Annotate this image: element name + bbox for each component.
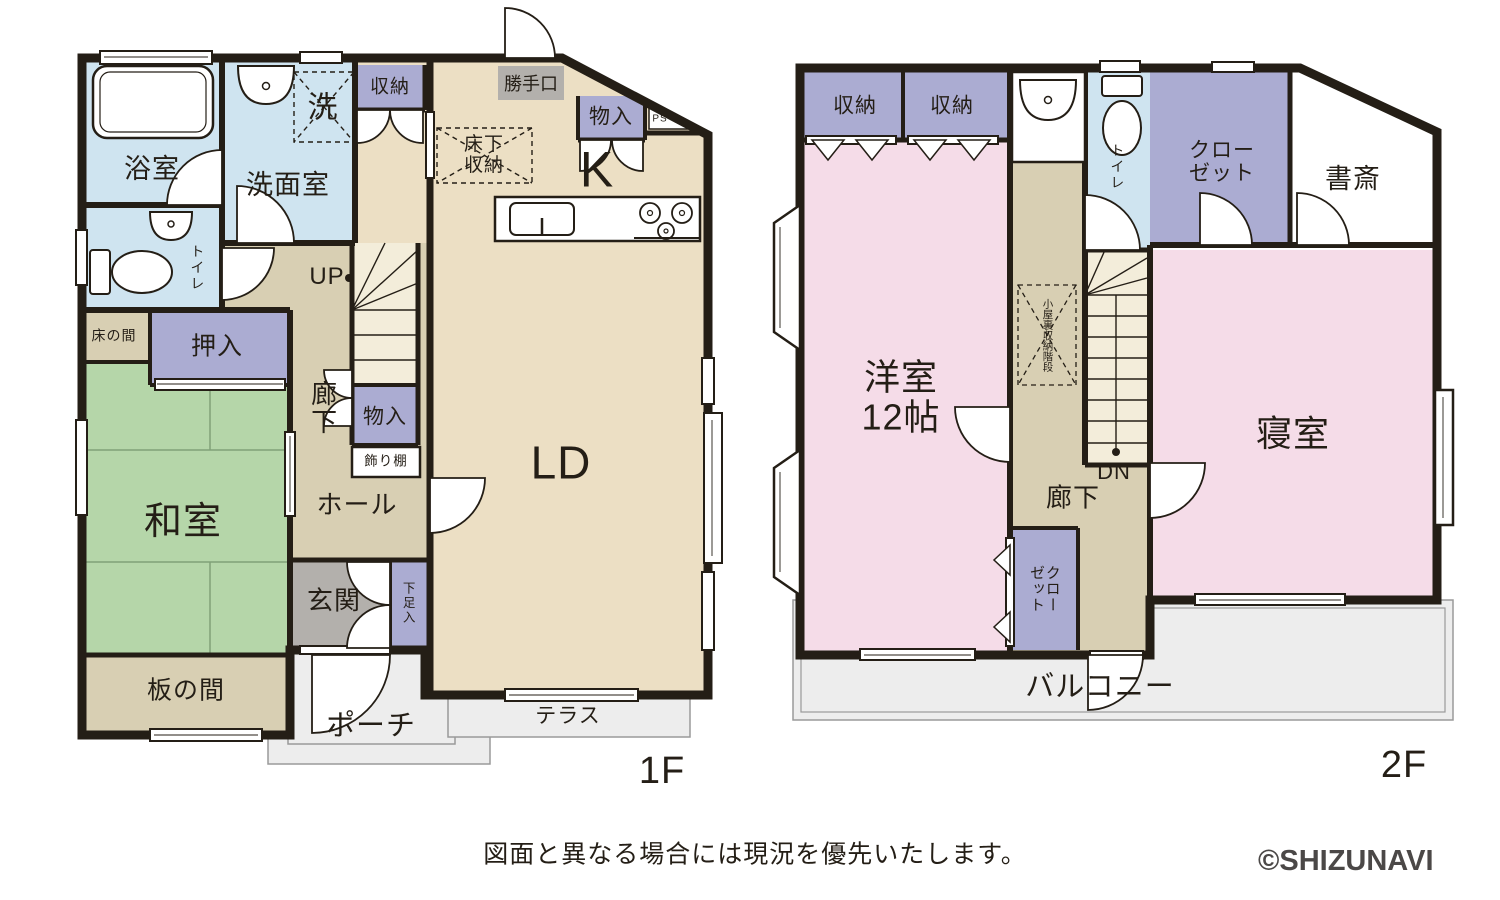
attic-storage-label: 小屋裏収納階段 — [1041, 298, 1052, 372]
kitchen-label: K — [580, 143, 614, 198]
storage-top-label: 収納 — [370, 78, 410, 99]
floorplan: 浴室 洗面室 洗 収納 勝手口 物入 PS 床下 収納 K トイレ UP 床の間… — [0, 0, 1500, 900]
hall-label: ホール — [316, 491, 397, 520]
entrance-label: 玄関 — [307, 587, 361, 616]
bath-label: 浴室 — [124, 155, 180, 185]
up-label: UP — [309, 264, 344, 290]
tokonoma-label: 床の間 — [92, 328, 137, 343]
study-label: 書斎 — [1325, 165, 1381, 195]
toilet-1f-label: トイレ — [190, 244, 205, 292]
corridor-1f-label: 廊下 — [308, 380, 335, 436]
closet-topright-label: 物入 — [589, 105, 633, 128]
western-room-label: 洋室 12帖 — [861, 357, 940, 436]
closet-bottom-label: クローゼット — [1028, 561, 1060, 617]
dn-label: DN — [1097, 460, 1131, 484]
underfloor-label: 床下 収納 — [464, 135, 504, 177]
laundry-label: 洗 — [308, 92, 339, 125]
washroom-label: 洗面室 — [246, 171, 330, 201]
bedroom-label: 寝室 — [1256, 414, 1330, 454]
storage-b-label: 収納 — [930, 94, 974, 117]
floor2-label: 2F — [1381, 745, 1427, 787]
closet-stairs-label: 物入 — [363, 405, 407, 428]
ps-label: PS — [652, 114, 667, 125]
porch-label: ポーチ — [326, 711, 416, 743]
shelf-label: 飾り棚 — [364, 455, 408, 470]
corridor-2f-label: 廊下 — [1046, 484, 1100, 513]
oshiire-label: 押入 — [191, 333, 243, 361]
storage-a-label: 収納 — [833, 94, 877, 117]
closet-topright-2f-label: クロー ゼット — [1189, 139, 1255, 185]
itanoma-label: 板の間 — [147, 677, 225, 705]
living-label: LD — [531, 438, 592, 489]
washitsu-label: 和室 — [144, 502, 222, 544]
backdoor-label: 勝手口 — [498, 66, 564, 100]
shoebox-label: 下足入 — [400, 581, 413, 625]
balcony-label: バルコニー — [1025, 672, 1174, 704]
copyright-text: ©SHIZUNAVI — [1258, 845, 1434, 878]
dn-marker — [1112, 448, 1120, 456]
terrace-label: テラス — [535, 704, 601, 727]
floor1-label: 1F — [639, 751, 685, 793]
toilet-2f-label: トイレ — [1110, 143, 1125, 191]
disclaimer-text: 図面と異なる場合には現況を優先いたします。 — [483, 841, 1027, 869]
